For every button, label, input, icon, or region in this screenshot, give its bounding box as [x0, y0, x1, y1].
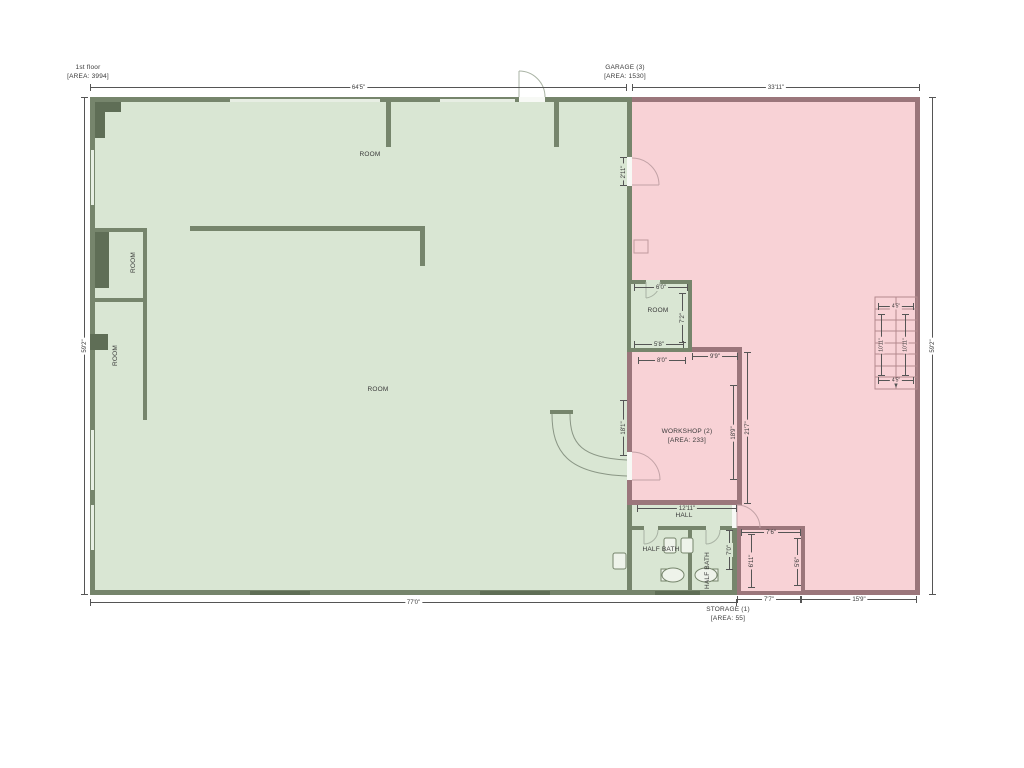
dim-stairs-width-top: 4'5" [878, 306, 914, 307]
dim-floor-width-bottom: 77'0" [90, 602, 737, 603]
room-label-left: ROOM [112, 337, 121, 373]
window-top-1 [230, 99, 380, 102]
dim-workshop-width-top-left: 8'0" [638, 360, 686, 361]
dim-workshop-height-right: 18'9" [733, 385, 734, 480]
dim-stairs-height-right: 10'11" [905, 314, 906, 376]
curve-wall-stub [550, 410, 573, 414]
bath-partition-wall [688, 526, 692, 595]
left-wall-stub [90, 334, 108, 350]
wall-l-vertical [420, 226, 425, 266]
dim-floor-width-top: 64'5" [90, 87, 627, 88]
dim-height-right: 59'2" [932, 97, 933, 595]
dim-garage-width-bottom: 15'9" [801, 599, 917, 600]
bottom-wall-seg-2 [480, 591, 550, 595]
room-label-tl: ROOM [130, 244, 139, 280]
bottom-wall-seg-3 [655, 591, 700, 595]
garage-label: GARAGE (3) [AREA: 1530] [590, 64, 660, 82]
small-room-tl-bottom-wall [95, 298, 147, 302]
garage-door-gap [627, 157, 632, 186]
dim-storage-height-right: 5'6" [797, 538, 798, 586]
dim-garage-door-height: 2'11" [623, 157, 624, 186]
workshop-area [627, 347, 742, 505]
wall-l-horizontal [190, 226, 425, 231]
dim-garage-width-top: 33'11" [632, 87, 920, 88]
bath1-door-gap [644, 526, 658, 530]
small-room-tl-right-wall [143, 228, 147, 420]
window-left-1 [91, 150, 94, 205]
floor-plan-canvas: 64'5" 33'11" 59'2" 59'2" 77'0" 7'7" 15'9… [0, 0, 1024, 768]
dim-small-room-width-bottom: 5'8" [634, 344, 684, 345]
bath2-door-gap [706, 526, 720, 530]
window-left-3 [91, 505, 94, 550]
workshop-door-gap [627, 452, 632, 480]
wall-stub-top-2 [554, 97, 559, 147]
dim-workshop-height-left: 18'1" [623, 400, 624, 456]
wall-stub-top-1 [386, 97, 391, 147]
small-room-door-gap [646, 280, 660, 284]
first-floor-area [90, 97, 632, 595]
window-top-2 [440, 99, 515, 102]
dim-storage-height-left: 6'11" [751, 534, 752, 588]
dim-height-left: 59'2" [84, 97, 85, 595]
dim-workshop-height-outer: 21'7" [747, 352, 748, 504]
dim-small-room-height: 7'2" [682, 293, 683, 343]
hall-label: HALL [664, 512, 704, 521]
bottom-wall-seg-1 [250, 591, 310, 595]
room-label-small: ROOM [632, 307, 684, 316]
bath2-label: HALF BATH [704, 543, 713, 597]
room-label-main: ROOM [348, 386, 408, 395]
window-left-2 [91, 430, 94, 490]
dim-stairs-height-left: 10'11" [881, 314, 882, 376]
top-door-gap [519, 97, 545, 102]
dim-storage-width-top: 7'6" [741, 532, 801, 533]
thick-wall-block [95, 232, 109, 288]
first-floor-label: 1st floor [AREA: 3994] [53, 64, 123, 82]
top-door-icon [519, 71, 545, 97]
storage-label: STORAGE (1) [AREA: 55] [693, 606, 763, 624]
dim-hall-height-right: 7'0" [729, 530, 730, 570]
bath1-label: HALF BATH [634, 546, 688, 555]
dim-storage-width-bottom: 7'7" [737, 599, 801, 600]
workshop-label: WORKSHOP (2) [AREA: 233] [643, 428, 731, 446]
dim-workshop-width-bottom: 12'11" [637, 508, 737, 509]
corner-block-v [95, 102, 105, 138]
room-label-top: ROOM [340, 151, 400, 160]
dim-workshop-width-top-right: 9'9" [692, 356, 738, 357]
dim-stairs-width-bottom: 4'5" [878, 380, 914, 381]
dim-small-room-width-top: 6'0" [634, 287, 688, 288]
